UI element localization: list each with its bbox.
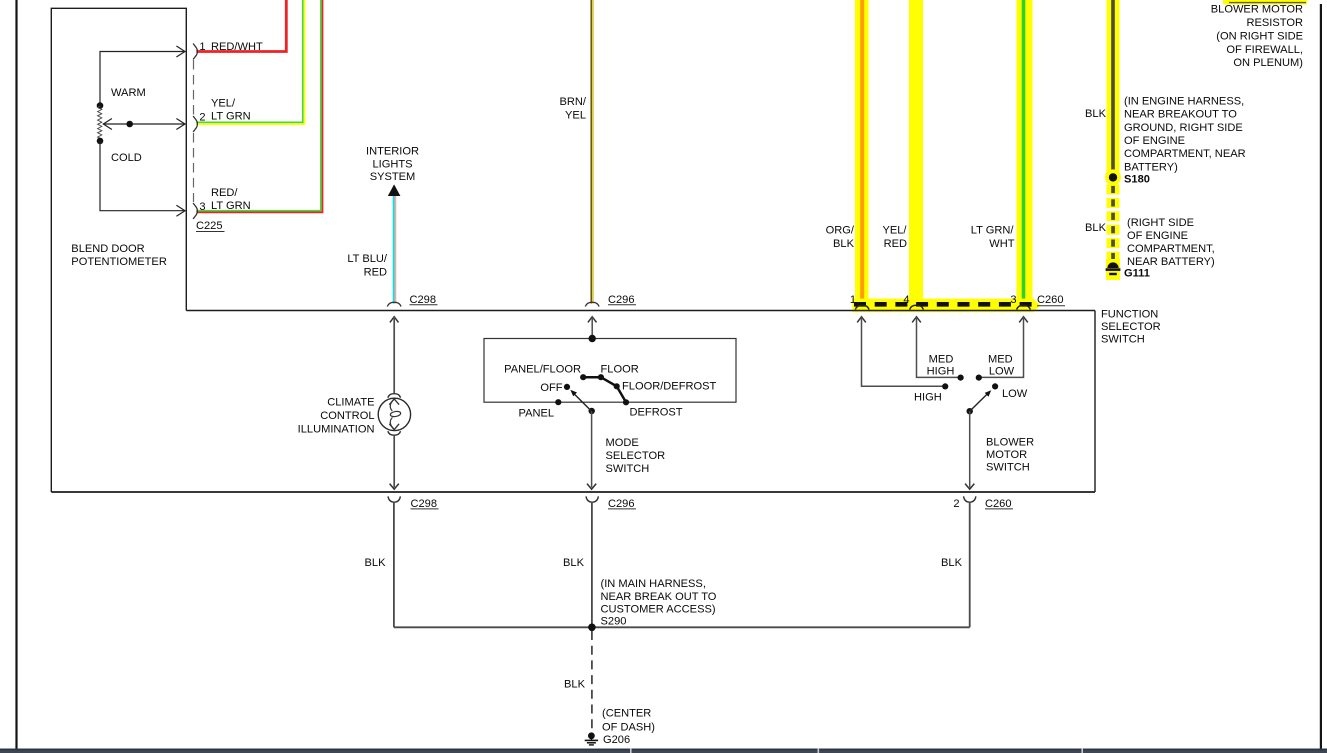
svg-text:BLK: BLK bbox=[1085, 222, 1107, 234]
svg-text:CONTROL: CONTROL bbox=[320, 410, 374, 422]
svg-text:C298: C298 bbox=[411, 498, 438, 510]
svg-text:C225: C225 bbox=[196, 220, 223, 232]
svg-text:NEAR BREAKOUT TO: NEAR BREAKOUT TO bbox=[1124, 109, 1237, 121]
svg-text:SELECTOR: SELECTOR bbox=[1101, 321, 1161, 333]
svg-text:OF ENGINE: OF ENGINE bbox=[1124, 135, 1185, 147]
svg-text:LOW: LOW bbox=[989, 366, 1015, 378]
svg-text:G206: G206 bbox=[603, 734, 630, 746]
svg-text:S180: S180 bbox=[1124, 174, 1150, 186]
svg-text:BLK: BLK bbox=[1085, 108, 1107, 120]
svg-text:RED/: RED/ bbox=[211, 187, 238, 199]
svg-text:BLK: BLK bbox=[365, 557, 387, 569]
svg-text:S290: S290 bbox=[601, 616, 627, 628]
svg-text:RESISTOR: RESISTOR bbox=[1246, 17, 1303, 29]
svg-text:(ON RIGHT SIDE: (ON RIGHT SIDE bbox=[1216, 30, 1303, 42]
svg-text:3: 3 bbox=[1010, 294, 1016, 306]
svg-text:LT BLU/: LT BLU/ bbox=[347, 253, 388, 265]
svg-text:(IN ENGINE HARNESS,: (IN ENGINE HARNESS, bbox=[1124, 95, 1244, 107]
svg-text:(IN MAIN HARNESS,: (IN MAIN HARNESS, bbox=[601, 578, 706, 590]
svg-text:BLK: BLK bbox=[833, 238, 855, 250]
svg-text:FLOOR: FLOOR bbox=[601, 364, 639, 376]
svg-text:COMPARTMENT,: COMPARTMENT, bbox=[1127, 243, 1215, 255]
svg-text:BLK: BLK bbox=[563, 557, 585, 569]
svg-text:CUSTOMER ACCESS): CUSTOMER ACCESS) bbox=[601, 604, 716, 616]
svg-text:FLOOR/DEFROST: FLOOR/DEFROST bbox=[622, 381, 717, 393]
svg-text:COLD: COLD bbox=[111, 152, 142, 164]
svg-text:MODE: MODE bbox=[606, 437, 639, 449]
svg-text:MOTOR: MOTOR bbox=[986, 449, 1027, 461]
svg-text:BLOWER: BLOWER bbox=[986, 437, 1034, 449]
svg-text:YEL: YEL bbox=[565, 110, 586, 122]
svg-text:2: 2 bbox=[953, 498, 959, 510]
svg-text:SELECTOR: SELECTOR bbox=[606, 450, 666, 462]
svg-text:4: 4 bbox=[903, 294, 909, 306]
svg-text:ILLUMINATION: ILLUMINATION bbox=[298, 424, 375, 436]
svg-text:G111: G111 bbox=[1124, 268, 1150, 280]
svg-text:HIGH: HIGH bbox=[927, 366, 955, 378]
svg-text:LIGHTS: LIGHTS bbox=[372, 158, 412, 170]
svg-text:LT GRN: LT GRN bbox=[211, 200, 251, 212]
svg-text:C296: C296 bbox=[608, 294, 635, 306]
svg-text:RED: RED bbox=[884, 238, 907, 250]
svg-text:LOW: LOW bbox=[1002, 388, 1028, 400]
svg-text:SWITCH: SWITCH bbox=[606, 463, 650, 475]
svg-text:ORG/: ORG/ bbox=[826, 225, 855, 237]
svg-text:C298: C298 bbox=[410, 294, 437, 306]
svg-text:YEL/: YEL/ bbox=[211, 98, 236, 110]
svg-text:MED: MED bbox=[929, 354, 954, 366]
svg-text:LT GRN: LT GRN bbox=[211, 111, 251, 123]
svg-text:BRN/: BRN/ bbox=[559, 96, 586, 108]
svg-text:INTERIOR: INTERIOR bbox=[366, 146, 419, 158]
svg-text:C260: C260 bbox=[1037, 294, 1064, 306]
svg-text:OF DASH): OF DASH) bbox=[602, 722, 655, 734]
svg-text:RED/WHT: RED/WHT bbox=[211, 41, 263, 53]
svg-text:(CENTER: (CENTER bbox=[602, 708, 651, 720]
svg-text:CLIMATE: CLIMATE bbox=[327, 397, 374, 409]
svg-text:BLEND DOOR: BLEND DOOR bbox=[71, 243, 144, 255]
svg-text:3: 3 bbox=[199, 201, 205, 213]
svg-text:YEL/: YEL/ bbox=[882, 225, 907, 237]
svg-text:LT GRN/: LT GRN/ bbox=[971, 225, 1015, 237]
svg-text:WARM: WARM bbox=[111, 87, 146, 99]
svg-text:NEAR BREAK OUT TO: NEAR BREAK OUT TO bbox=[601, 591, 717, 603]
svg-text:OF FIREWALL,: OF FIREWALL, bbox=[1226, 44, 1303, 56]
svg-text:1: 1 bbox=[850, 294, 856, 306]
svg-text:1: 1 bbox=[199, 41, 205, 53]
svg-text:DEFROST: DEFROST bbox=[630, 407, 683, 419]
svg-text:MED: MED bbox=[988, 354, 1013, 366]
svg-text:SYSTEM: SYSTEM bbox=[370, 171, 416, 183]
svg-text:2: 2 bbox=[199, 111, 205, 123]
svg-text:OFF: OFF bbox=[540, 382, 562, 394]
svg-text:PANEL/FLOOR: PANEL/FLOOR bbox=[504, 364, 581, 376]
svg-text:HIGH: HIGH bbox=[914, 392, 942, 404]
svg-text:PANEL: PANEL bbox=[519, 408, 555, 420]
svg-text:BLOWER MOTOR: BLOWER MOTOR bbox=[1211, 4, 1303, 16]
svg-text:RED: RED bbox=[364, 267, 387, 279]
svg-text:ON PLENUM): ON PLENUM) bbox=[1233, 57, 1303, 69]
svg-text:FUNCTION: FUNCTION bbox=[1101, 309, 1158, 321]
svg-text:BLK: BLK bbox=[564, 679, 586, 691]
svg-text:BATTERY): BATTERY) bbox=[1124, 161, 1178, 173]
svg-text:SWITCH: SWITCH bbox=[1101, 334, 1145, 346]
svg-text:C260: C260 bbox=[985, 498, 1012, 510]
svg-text:BLK: BLK bbox=[941, 557, 963, 569]
svg-text:NEAR BATTERY): NEAR BATTERY) bbox=[1127, 256, 1215, 268]
svg-text:OF ENGINE: OF ENGINE bbox=[1127, 230, 1188, 242]
svg-text:(RIGHT SIDE: (RIGHT SIDE bbox=[1127, 217, 1194, 229]
svg-text:WHT: WHT bbox=[989, 238, 1014, 250]
svg-text:GROUND, RIGHT SIDE: GROUND, RIGHT SIDE bbox=[1124, 122, 1243, 134]
svg-text:SWITCH: SWITCH bbox=[986, 462, 1030, 474]
svg-text:COMPARTMENT, NEAR: COMPARTMENT, NEAR bbox=[1124, 148, 1246, 160]
svg-text:C296: C296 bbox=[608, 498, 635, 510]
svg-text:POTENTIOMETER: POTENTIOMETER bbox=[71, 256, 167, 268]
